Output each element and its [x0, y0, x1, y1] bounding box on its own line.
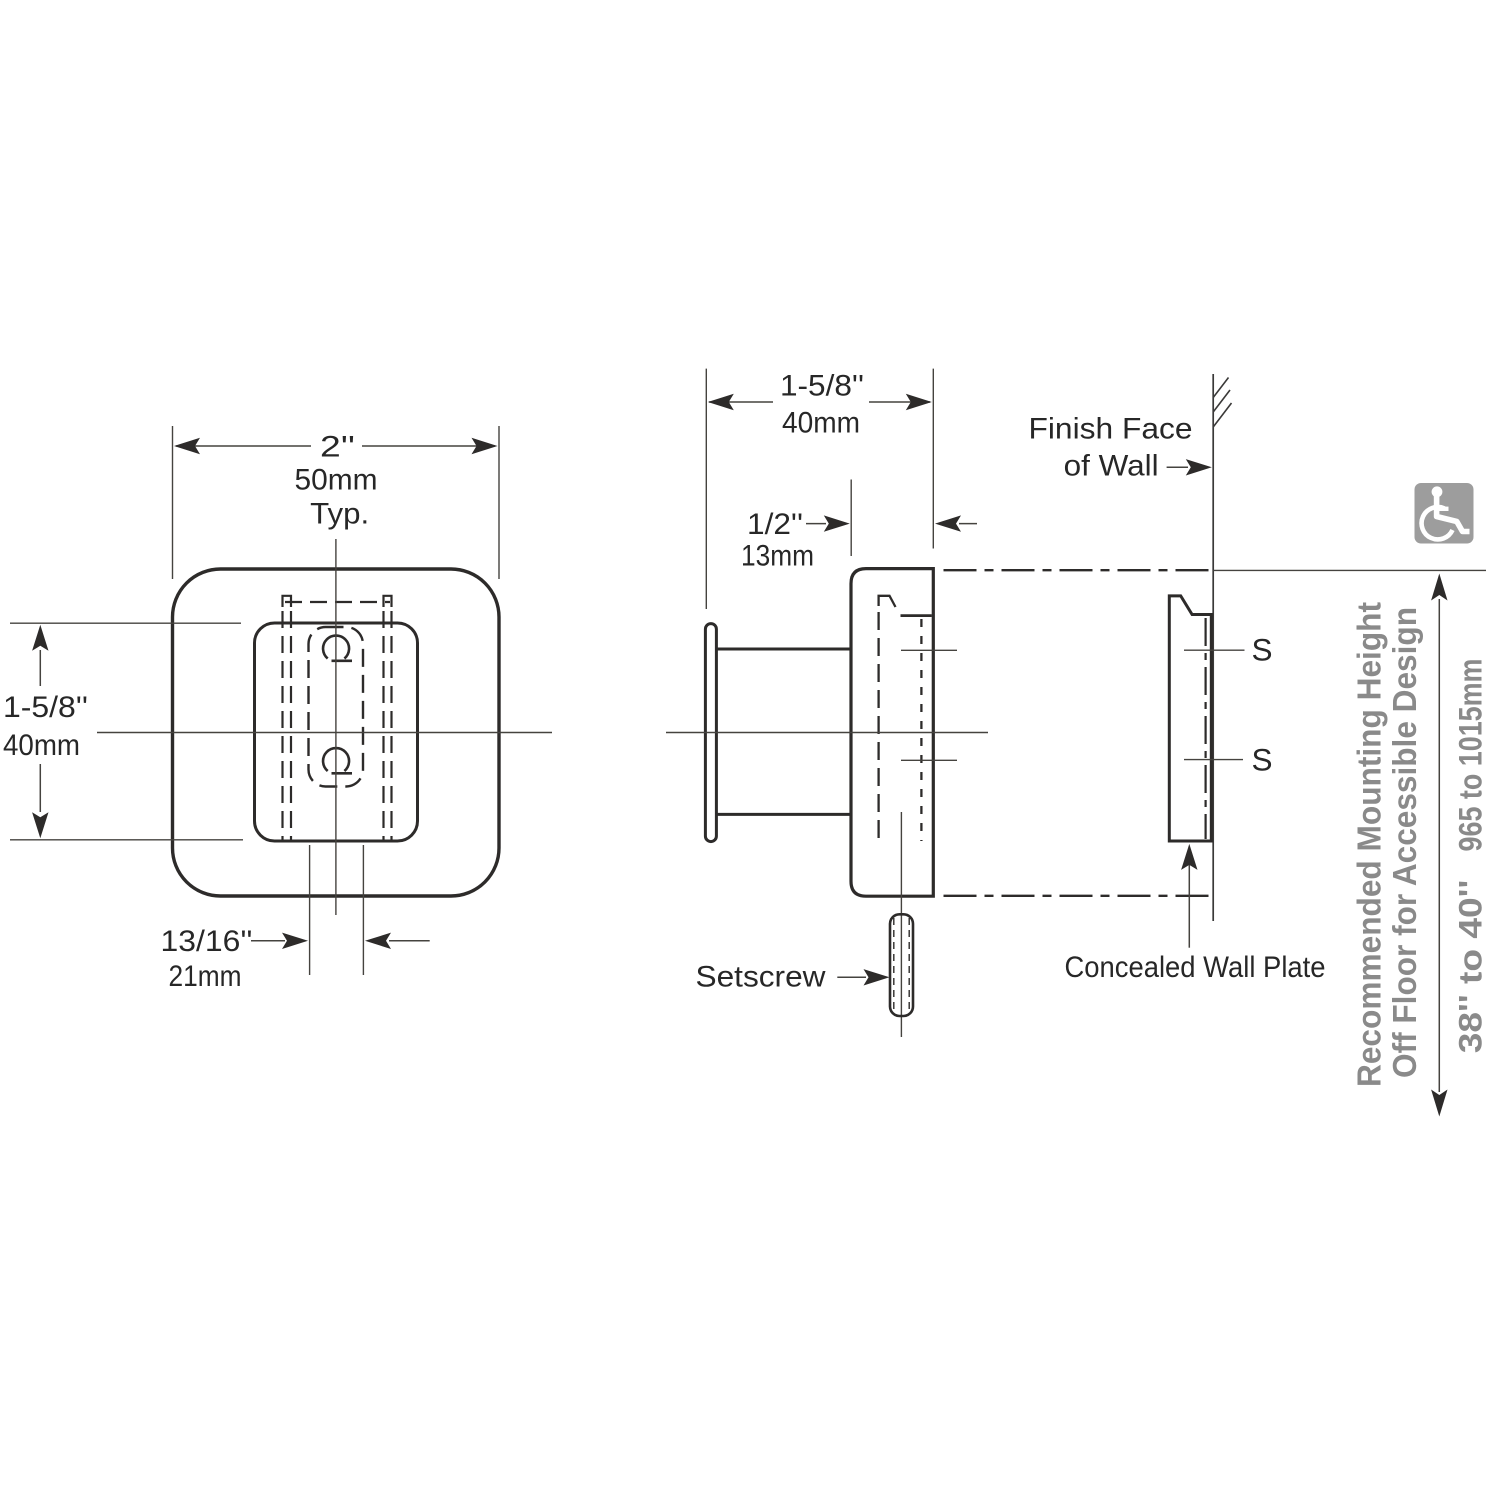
svg-text:S: S	[1252, 631, 1273, 667]
svg-text:1/2'': 1/2''	[747, 508, 803, 541]
svg-text:50mm: 50mm	[295, 464, 378, 497]
svg-text:Setscrew: Setscrew	[696, 960, 826, 993]
svg-text:1-5/8'': 1-5/8''	[780, 369, 864, 402]
svg-text:40mm: 40mm	[782, 406, 860, 439]
svg-text:965 to 1015mm: 965 to 1015mm	[1452, 659, 1486, 852]
svg-text:13/16'': 13/16''	[161, 925, 253, 958]
svg-text:Off Floor for Accessible Desig: Off Floor for Accessible Design	[1387, 607, 1424, 1078]
svg-text:2'': 2''	[320, 430, 355, 463]
svg-text:1-5/8'': 1-5/8''	[3, 691, 88, 724]
svg-text:40mm: 40mm	[3, 729, 80, 762]
svg-text:Finish Face: Finish Face	[1029, 412, 1193, 445]
svg-text:S: S	[1252, 742, 1273, 778]
svg-text:Typ.: Typ.	[310, 498, 369, 531]
svg-text:13mm: 13mm	[741, 540, 814, 573]
svg-text:Recommended Mounting Height: Recommended Mounting Height	[1352, 602, 1389, 1087]
svg-text:Concealed Wall Plate: Concealed Wall Plate	[1065, 951, 1326, 984]
svg-text:21mm: 21mm	[169, 960, 242, 993]
svg-text:38'' to 40'': 38'' to 40''	[1452, 880, 1486, 1054]
svg-text:of Wall: of Wall	[1064, 450, 1159, 483]
